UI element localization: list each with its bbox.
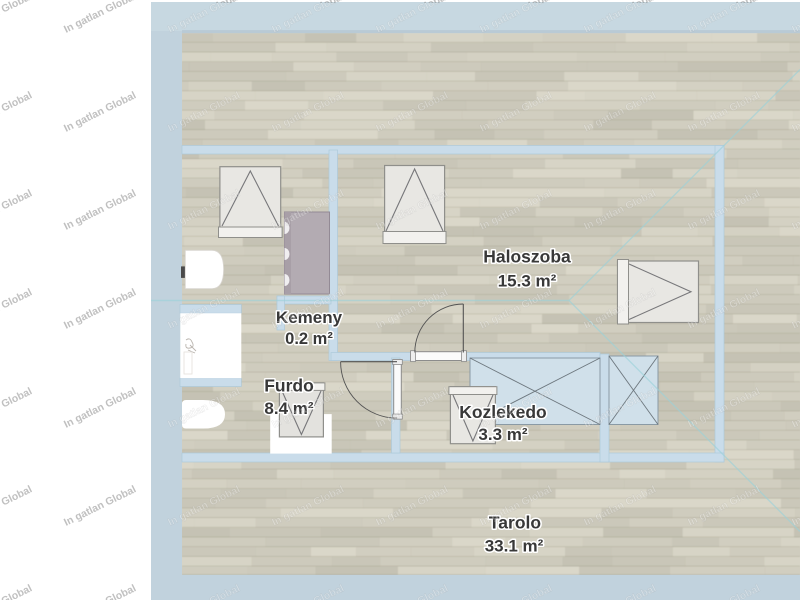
svg-text:0.2 m²: 0.2 m² [285,330,333,348]
svg-text:33.1 m²: 33.1 m² [485,537,544,556]
svg-text:Furdo: Furdo [264,376,314,396]
svg-text:Haloszoba: Haloszoba [483,247,571,267]
